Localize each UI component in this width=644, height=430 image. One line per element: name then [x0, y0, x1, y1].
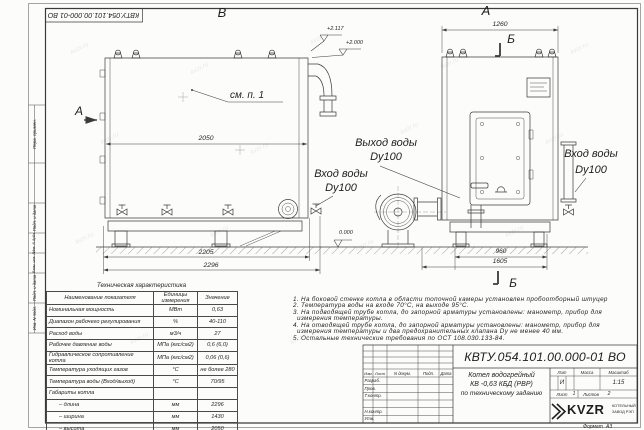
note-line: 5. Остальные технические требования по О… [293, 335, 505, 342]
margin-label-perv: Перв. примен. [33, 105, 45, 163]
inlet-right-size: Dy100 [560, 165, 622, 177]
drawing-sheet: kvzr.ru kvzr.ru kvzr.ru kvzr.ru kvzr.ru … [0, 0, 644, 430]
table-row: Расход водым3/ч27 [47, 328, 238, 340]
tb-row-tkontr: Т.контр. [365, 393, 382, 398]
tb-col-doc: N докум. [387, 371, 418, 376]
tb-sheet-value: 1 [570, 391, 578, 397]
dim-2296: 2296 [191, 262, 231, 269]
table-row: Диапазон рабочего регулирования%40-110 [47, 316, 238, 328]
margin-label-vzam: Взам. инв. N [33, 253, 45, 273]
elevation-top: +2.117 [327, 27, 344, 33]
table-row: – длинамм2296 [47, 399, 238, 411]
table-row: Температура уходящих газов°Сне более 280 [47, 364, 238, 376]
col-header-name: Наименование показателя [47, 292, 154, 305]
boiler-door [470, 112, 530, 205]
tb-scale-label: Масштаб [600, 370, 637, 375]
section-b-bottom-label: Б [505, 277, 521, 290]
table-row: Рабочее давление водыМПа (кгс/см2)0,6 (6… [47, 340, 238, 352]
tb-name-line3: по техническому заданию [453, 390, 550, 397]
spec-table-title: Техническая характеристика [46, 283, 237, 290]
format-label: Формат [583, 424, 603, 430]
table-row: Габариты котла [47, 388, 238, 400]
view-b-linework [100, 50, 336, 247]
tb-col-podp: Подп. [418, 371, 439, 376]
tb-name-line2: КВ -0,63 КБД (РВР) [453, 381, 550, 388]
nameplate [527, 78, 550, 97]
col-header-unit: Единицы измерения [154, 292, 198, 305]
cut-a-label: А [70, 105, 88, 118]
doc-number-rotated: КВТУ.054.101.00.000-01 ВО [45, 8, 142, 22]
kvzr-logo-sub1: КОТЕЛЬНЫЙ [612, 404, 636, 408]
tb-row-prov: Пров. [365, 386, 376, 391]
view-a-label: А [477, 4, 495, 18]
table-row: – ширинамм1430 [47, 411, 238, 423]
margin-label-podp2: Подп. и дата [33, 273, 45, 303]
dim-1605: 1605 [480, 259, 520, 266]
tb-mass-label: Масса [574, 370, 600, 375]
margin-label-podp1: Подп. и дата [33, 203, 45, 233]
tb-row-razrab: Разраб. [365, 378, 381, 383]
margin-label-inv-dubl: Инв. N дубл. [33, 233, 45, 253]
kvzr-logo-sub2: ЗАВОД РЭП [612, 410, 634, 414]
view-b-label: В [213, 6, 231, 20]
tb-sheets-value: 2 [604, 391, 614, 397]
title-block-doc-number: КВТУ.054.101.00.000-01 ВО [453, 347, 637, 367]
tb-col-list: Лист [373, 371, 387, 376]
inlet-mid-label: Вход воды [310, 169, 372, 181]
tb-row-utv: Утв. [365, 416, 375, 421]
table-row: Температура воды (Вход/выход)°С70/95 [47, 376, 238, 388]
spec-table: Наименование показателя Единицы измерени… [46, 291, 238, 430]
col-header-value: Значение [198, 292, 238, 305]
table-row: Гидравлическое сопротивление котлаМПа (к… [47, 351, 238, 364]
dim-1260: 1260 [480, 21, 520, 28]
tb-row-nkontr: Н.контр. [365, 409, 383, 414]
outlet-size: Dy100 [352, 152, 420, 164]
fan-linework [374, 186, 446, 247]
dimension-lines [104, 26, 559, 274]
dim-2205: 2205 [186, 249, 226, 256]
inlet-mid-size: Dy100 [310, 183, 372, 195]
tb-col-data: Дата [439, 371, 453, 376]
door-handle [471, 183, 488, 188]
tb-name-line1: Котел водогрейный [453, 372, 550, 379]
inlet-right-label: Вход воды [560, 149, 622, 161]
elevation-mid: +2.000 [346, 41, 363, 47]
tb-lit-label: Лит [550, 370, 574, 375]
format-value: А3 [606, 424, 612, 430]
margin-label-inv-podl: Инв. N подл. [33, 303, 45, 333]
outlet-label: Выход воды [352, 138, 420, 150]
kvzr-logo: KVZR [567, 402, 604, 417]
see-note-callout: см. п. 1 [230, 91, 264, 102]
tb-lit-value: И [558, 380, 566, 386]
tb-scale-value: 1:15 [600, 380, 637, 386]
table-row: Номинальная мощностьМВт0,63 [47, 305, 238, 317]
table-header-row: Наименование показателя Единицы измерени… [47, 292, 238, 305]
dim-960: 960 [481, 249, 521, 256]
table-row: – высотамм2050 [47, 423, 238, 430]
dim-2050: 2050 [186, 135, 226, 142]
view-a-linework [442, 49, 576, 247]
tb-sheets-label: Листов [579, 392, 603, 397]
section-b-top-label: Б [503, 33, 519, 46]
elevation-zero: 0.000 [339, 231, 353, 237]
